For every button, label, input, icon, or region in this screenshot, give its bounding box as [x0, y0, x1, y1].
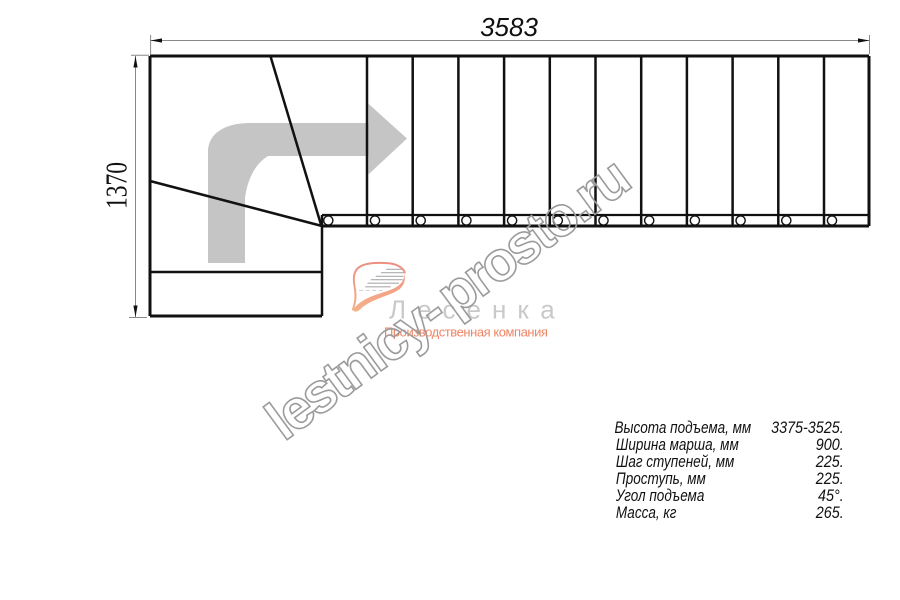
svg-text:Проступь, мм: Проступь, мм — [616, 470, 707, 489]
svg-text:Ширина марша, мм: Ширина марша, мм — [616, 436, 739, 455]
svg-text:225.: 225. — [815, 453, 844, 471]
svg-text:Шаг ступеней, мм: Шаг ступеней, мм — [616, 453, 735, 472]
svg-text:1370: 1370 — [99, 162, 134, 209]
svg-text:Угол подъема: Угол подъема — [615, 487, 704, 506]
svg-text:3583: 3583 — [480, 12, 538, 42]
svg-text:Высота подъема, мм: Высота подъема, мм — [615, 419, 752, 438]
svg-text:45°.: 45°. — [818, 487, 844, 505]
svg-text:3375-3525.: 3375-3525. — [771, 419, 844, 437]
svg-text:225.: 225. — [815, 470, 844, 488]
svg-text:Масса, кг: Масса, кг — [616, 504, 677, 523]
svg-text:900.: 900. — [816, 436, 844, 454]
svg-text:265.: 265. — [815, 504, 844, 522]
